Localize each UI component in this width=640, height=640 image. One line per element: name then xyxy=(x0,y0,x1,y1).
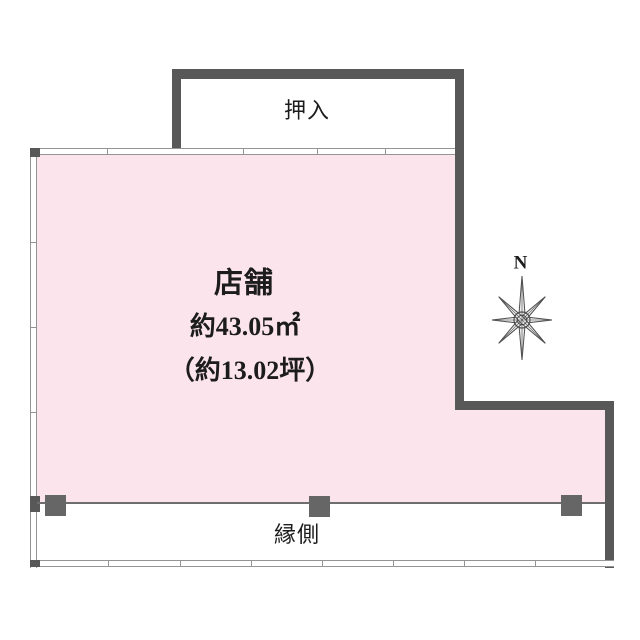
pillar-right xyxy=(561,495,582,516)
bottom-left-corner-block xyxy=(30,560,40,567)
closet-left-wall xyxy=(172,69,181,148)
step-wall xyxy=(455,401,614,410)
shop-label: 店舗 xyxy=(214,270,274,299)
compass-north-label: N xyxy=(514,254,529,273)
veranda-label: 縁側 xyxy=(274,524,320,546)
floor-plan: 押入 店舗 約43.05㎡ （約13.02坪） 縁側 N xyxy=(0,0,640,640)
shop-room-area-extension xyxy=(455,410,605,503)
right-upper-wall xyxy=(455,69,464,410)
top-left-corner-block xyxy=(30,148,40,157)
shop-area-m2: 約43.05㎡ xyxy=(190,314,301,340)
closet-top-wall xyxy=(172,69,464,79)
compass-rose-icon xyxy=(477,272,567,368)
bottom-window-wall xyxy=(30,560,614,567)
closet-label: 押入 xyxy=(284,100,330,122)
left-wall-junction-block xyxy=(30,496,40,512)
pillar-center xyxy=(309,496,330,517)
pillar-left xyxy=(45,495,66,516)
shop-area-tsubo: （約13.02坪） xyxy=(169,358,332,384)
top-window-wall xyxy=(30,148,455,155)
right-lower-wall xyxy=(605,401,614,568)
